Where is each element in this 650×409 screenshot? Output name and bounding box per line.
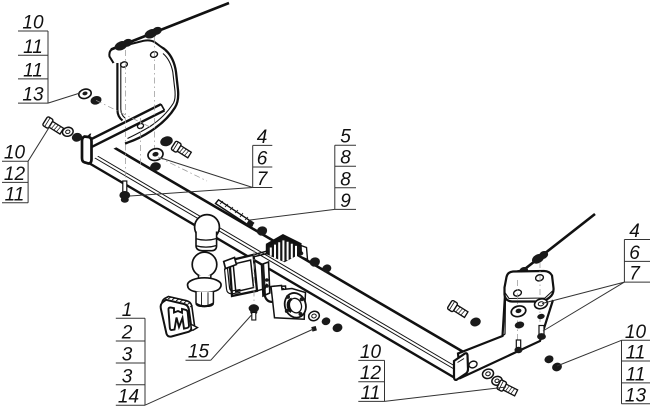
svg-text:11: 11	[5, 184, 25, 205]
svg-text:15: 15	[188, 342, 210, 363]
svg-text:10: 10	[22, 13, 44, 34]
svg-text:11: 11	[626, 364, 646, 385]
svg-text:8: 8	[340, 148, 351, 169]
svg-text:6: 6	[257, 149, 268, 170]
svg-text:12: 12	[360, 363, 382, 384]
svg-text:10: 10	[4, 143, 26, 164]
svg-text:3: 3	[122, 366, 133, 387]
svg-text:4: 4	[629, 221, 640, 242]
svg-text:1: 1	[122, 300, 133, 321]
svg-text:13: 13	[22, 85, 44, 106]
svg-text:11: 11	[626, 343, 646, 364]
svg-text:7: 7	[257, 169, 269, 190]
svg-text:8: 8	[340, 169, 351, 190]
svg-text:2: 2	[121, 323, 133, 344]
svg-text:9: 9	[340, 191, 351, 212]
svg-text:11: 11	[361, 383, 381, 404]
svg-text:10: 10	[360, 342, 382, 363]
svg-text:13: 13	[625, 385, 647, 406]
svg-text:4: 4	[257, 127, 268, 148]
svg-text:11: 11	[23, 60, 43, 81]
svg-text:11: 11	[23, 37, 43, 58]
svg-text:6: 6	[629, 243, 640, 264]
svg-text:5: 5	[340, 127, 351, 148]
svg-text:3: 3	[122, 345, 133, 366]
svg-text:10: 10	[625, 322, 647, 343]
svg-text:14: 14	[118, 387, 139, 408]
svg-text:7: 7	[629, 264, 641, 285]
svg-text:12: 12	[4, 164, 26, 185]
